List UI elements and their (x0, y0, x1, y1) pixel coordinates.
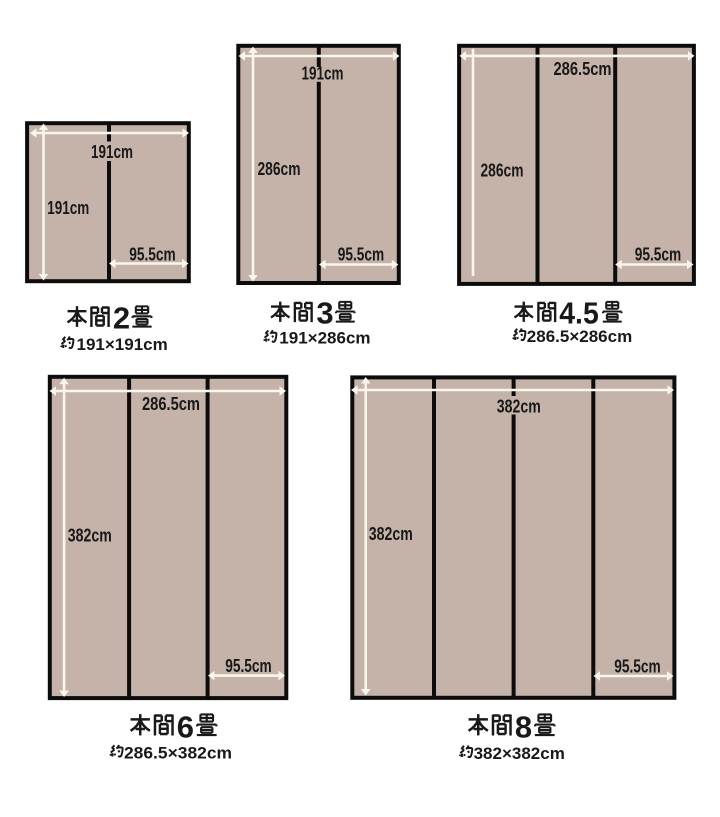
svg-text:95.5cm: 95.5cm (338, 245, 385, 265)
svg-text:95.5cm: 95.5cm (225, 656, 272, 676)
svg-text:286.5×286cm: 286.5×286cm (527, 327, 632, 346)
svg-text:2: 2 (113, 301, 130, 336)
svg-text:286cm: 286cm (481, 161, 524, 181)
svg-text:191cm: 191cm (47, 198, 89, 218)
svg-text:191cm: 191cm (91, 142, 133, 162)
svg-text:3: 3 (316, 296, 333, 331)
svg-text:4.5: 4.5 (559, 296, 599, 331)
svg-text:191×286cm: 191×286cm (279, 329, 370, 348)
svg-text:6: 6 (177, 710, 194, 745)
svg-text:286.5cm: 286.5cm (554, 59, 612, 79)
svg-text:95.5cm: 95.5cm (635, 245, 682, 265)
svg-text:382cm: 382cm (68, 526, 112, 546)
svg-text:382×382cm: 382×382cm (474, 744, 565, 763)
svg-text:286.5×382cm: 286.5×382cm (124, 744, 232, 763)
svg-text:95.5cm: 95.5cm (614, 657, 661, 677)
svg-text:95.5cm: 95.5cm (129, 245, 176, 265)
svg-text:286.5cm: 286.5cm (142, 394, 200, 414)
svg-text:191×191cm: 191×191cm (77, 335, 168, 354)
svg-text:191cm: 191cm (302, 64, 344, 84)
svg-text:286cm: 286cm (258, 159, 301, 179)
svg-text:382cm: 382cm (369, 524, 413, 544)
svg-text:382cm: 382cm (497, 397, 541, 417)
svg-text:8: 8 (515, 710, 532, 745)
